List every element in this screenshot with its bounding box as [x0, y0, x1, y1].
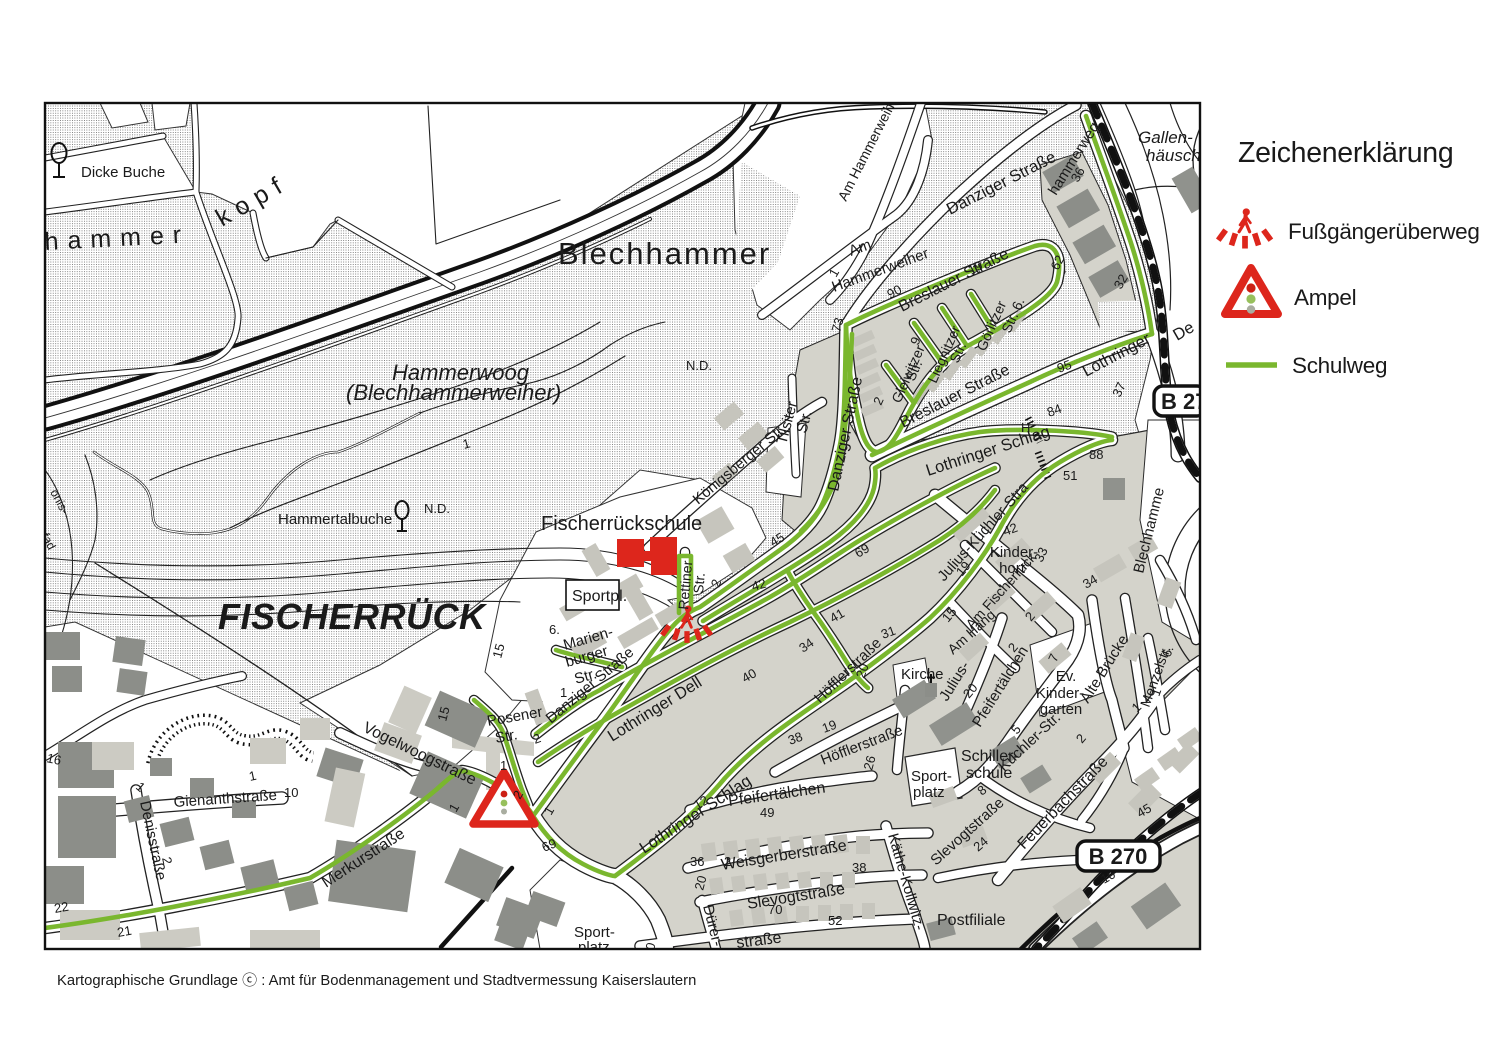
svg-text:2: 2	[724, 854, 731, 869]
svg-text:Fußgängerüberweg: Fußgängerüberweg	[1288, 219, 1480, 244]
svg-text:Sportpl.: Sportpl.	[572, 588, 627, 605]
svg-text:38: 38	[852, 860, 866, 875]
svg-text:häusch: häusch	[1146, 146, 1201, 165]
svg-text:Zeichenerklärung: Zeichenerklärung	[1238, 137, 1453, 169]
svg-text:6.: 6.	[549, 622, 560, 637]
svg-text:Postfiliale: Postfiliale	[937, 912, 1006, 929]
svg-text:Fischerrückschule: Fischerrückschule	[541, 513, 702, 535]
svg-text:1: 1	[560, 685, 567, 700]
svg-text:Sport-: Sport-	[911, 768, 952, 785]
svg-text:Gallen-: Gallen-	[1138, 128, 1193, 147]
svg-text:schule: schule	[966, 765, 1012, 782]
svg-text:70: 70	[768, 902, 782, 917]
svg-text:FISCHERRÜCK: FISCHERRÜCK	[218, 596, 488, 637]
svg-text:1: 1	[500, 758, 507, 773]
svg-text:platz: platz	[913, 784, 945, 801]
svg-text:88: 88	[1089, 447, 1103, 462]
svg-text:H: H	[1021, 420, 1030, 435]
svg-text:hort: hort	[999, 560, 1026, 577]
svg-text:Ev.: Ev.	[1056, 668, 1077, 685]
svg-text:Schulweg: Schulweg	[1292, 353, 1387, 378]
svg-text:Blechhammer: Blechhammer	[558, 236, 771, 271]
svg-text:52: 52	[828, 913, 842, 928]
svg-text:51: 51	[1063, 468, 1077, 483]
svg-text:Ampel: Ampel	[1294, 285, 1356, 310]
svg-text:49: 49	[760, 805, 774, 820]
svg-text:Hammertalbuche: Hammertalbuche	[278, 511, 392, 528]
svg-text:Kinder-: Kinder-	[1036, 685, 1084, 702]
svg-text:Str.: Str.	[690, 572, 708, 594]
svg-text:Kartographische Grundlage ⓒ :: Kartographische Grundlage ⓒ : Amt für Bo…	[57, 972, 696, 989]
svg-text:B 270: B 270	[1089, 844, 1148, 869]
svg-text:garten: garten	[1040, 701, 1083, 718]
svg-text:Kirche: Kirche	[901, 666, 944, 683]
svg-text:Schiller-: Schiller-	[961, 748, 1019, 765]
svg-text:36: 36	[690, 854, 704, 869]
svg-text:22: 22	[53, 899, 70, 916]
svg-text:(Blechhammerweiher): (Blechhammerweiher)	[346, 380, 561, 405]
svg-text:N.D.: N.D.	[686, 358, 712, 373]
svg-text:21: 21	[116, 923, 133, 940]
svg-text:N.D.: N.D.	[424, 501, 450, 516]
svg-text:16: 16	[45, 750, 62, 768]
svg-text:10: 10	[284, 785, 298, 800]
svg-text:Dicke Buche: Dicke Buche	[81, 164, 165, 181]
